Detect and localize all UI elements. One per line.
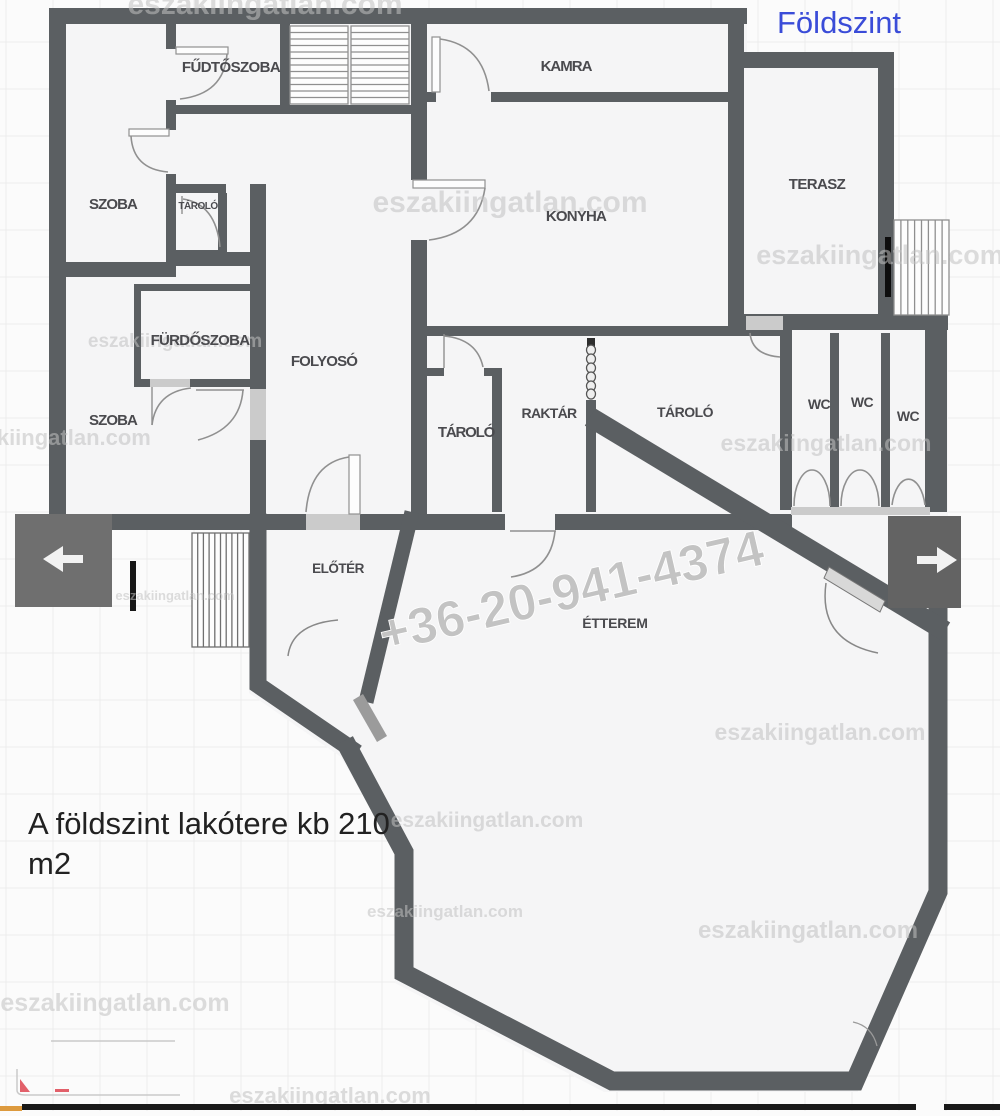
svg-text:Földszint: Földszint (777, 5, 901, 40)
svg-text:KAMRA: KAMRA (541, 58, 593, 75)
svg-text:ÉTTEREM: ÉTTEREM (582, 615, 648, 631)
svg-text:A földszint lakótere kb 210: A földszint lakótere kb 210 (28, 806, 390, 841)
svg-text:FOLYOSÓ: FOLYOSÓ (291, 352, 358, 370)
svg-text:SZOBA: SZOBA (89, 196, 138, 213)
svg-text:eszakiingatlan.com: eszakiingatlan.com (372, 186, 647, 219)
svg-text:TÁROLÓ: TÁROLÓ (178, 199, 218, 212)
svg-text:eszakiingatlan.com: eszakiingatlan.com (0, 989, 229, 1017)
svg-text:SZOBA: SZOBA (89, 412, 138, 429)
svg-text:WC: WC (897, 408, 920, 424)
svg-text:FŰDTŐSZOBA: FŰDTŐSZOBA (182, 58, 281, 76)
svg-text:eszakiingatlan.com: eszakiingatlan.com (715, 719, 926, 745)
svg-text:eszakiingatlan.com: eszakiingatlan.com (698, 917, 918, 944)
svg-text:RAKTÁR: RAKTÁR (522, 405, 577, 421)
svg-text:eszakiingatlan.com: eszakiingatlan.com (721, 430, 932, 456)
svg-text:eszakiingatlan.com: eszakiingatlan.com (367, 902, 523, 921)
svg-text:m2: m2 (28, 846, 71, 881)
svg-text:eszakiingatlan.com: eszakiingatlan.com (391, 809, 584, 832)
svg-text:ELŐTÉR: ELŐTÉR (312, 561, 365, 576)
svg-text:WC: WC (851, 394, 874, 410)
svg-text:TÁROLÓ: TÁROLÓ (657, 403, 714, 420)
svg-text:eszakiingatlan.com: eszakiingatlan.com (756, 240, 1000, 270)
svg-text:FÜRDŐSZOBA: FÜRDŐSZOBA (151, 331, 251, 349)
svg-text:WC: WC (808, 396, 831, 412)
svg-text:eszakiingatlan.com: eszakiingatlan.com (115, 588, 234, 603)
svg-text:TÁROLÓ: TÁROLÓ (438, 423, 496, 441)
svg-text:KONYHA: KONYHA (546, 208, 607, 225)
svg-text:TERASZ: TERASZ (789, 176, 846, 193)
svg-text:eszakiingatlan.com: eszakiingatlan.com (127, 0, 402, 21)
